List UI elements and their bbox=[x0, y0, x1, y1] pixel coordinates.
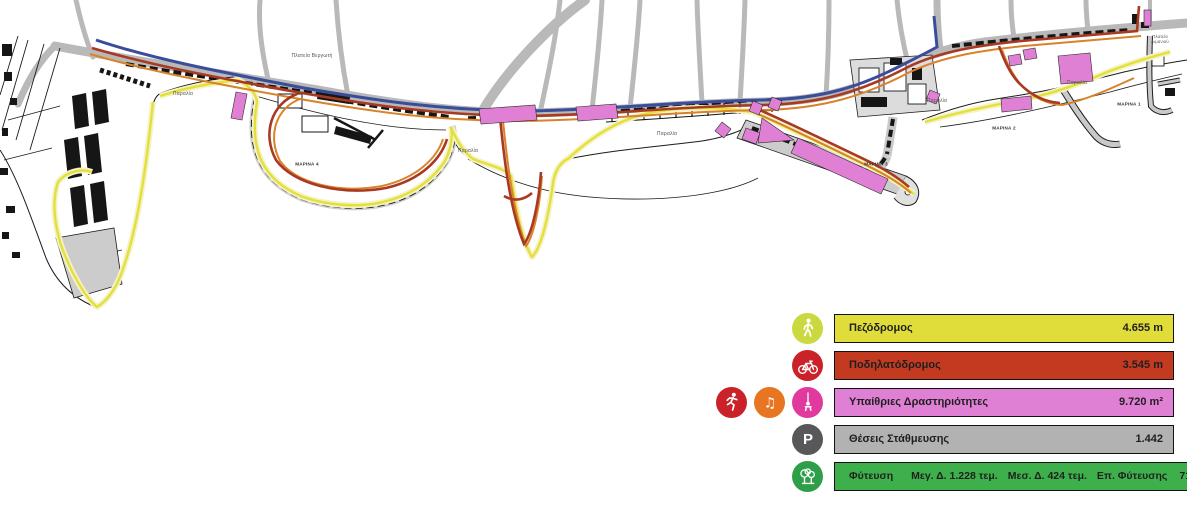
legend-icons-activities: ♫ bbox=[712, 387, 834, 418]
parking-icon: P bbox=[792, 424, 823, 455]
music-note-icon: ♫ bbox=[754, 387, 785, 418]
secondary-route bbox=[90, 36, 1141, 246]
legend-icons-bikeway bbox=[712, 350, 834, 381]
legend-row-bikeway: Ποδηλατόδρομος 3.545 m bbox=[712, 350, 1174, 380]
legend-bar-pedestrian: Πεζόδρομος 4.655 m bbox=[834, 314, 1174, 343]
legend-label: Θέσεις Στάθμευσης bbox=[849, 433, 949, 445]
svg-text:P: P bbox=[802, 431, 812, 448]
legend-bar-parking: Θέσεις Στάθμευσης 1.442 bbox=[834, 425, 1174, 454]
trees-icon bbox=[792, 461, 823, 492]
legend-bar-activities: Υπαίθριες Δραστηριότητες 9.720 m² bbox=[834, 388, 1174, 417]
legend-detail: Μεσ. Δ. 424 τεμ. bbox=[1008, 470, 1087, 482]
legend-value: 1.442 bbox=[1135, 433, 1163, 445]
legend-icons-planting bbox=[712, 461, 834, 492]
coastal-plan-page: Πλατεία ΒεργωτήΠαραλίαΜΑΡΙΝΑ 4ΠαραλίαΠαρ… bbox=[0, 0, 1187, 521]
legend-value: 9.720 m² bbox=[1119, 396, 1163, 408]
legend-label: Υπαίθριες Δραστηριότητες bbox=[849, 396, 988, 408]
coastal-plan-map bbox=[0, 0, 1187, 315]
legend-bar-bikeway: Ποδηλατόδρομος 3.545 m bbox=[834, 351, 1174, 380]
legend-label: Φύτευση bbox=[849, 470, 893, 482]
legend: Πεζόδρομος 4.655 m Ποδηλατόδρομος 3.545 … bbox=[712, 313, 1174, 498]
legend-row-planting: Φύτευση Μεγ. Δ. 1.228 τεμ. Μεσ. Δ. 424 τ… bbox=[712, 461, 1174, 491]
walking-person-icon bbox=[792, 313, 823, 344]
legend-detail: Επ. Φύτευσης bbox=[1097, 470, 1167, 482]
legend-label: Πεζόδρομος bbox=[849, 322, 913, 334]
legend-value: 4.655 m bbox=[1123, 322, 1163, 334]
legend-value: 71.200 m² bbox=[1179, 470, 1187, 482]
legend-detail: Μεγ. Δ. 1.228 τεμ. bbox=[911, 470, 998, 482]
svg-text:♫: ♫ bbox=[763, 396, 776, 412]
runner-icon bbox=[716, 387, 747, 418]
legend-value: 3.545 m bbox=[1123, 359, 1163, 371]
legend-row-parking: P Θέσεις Στάθμευσης 1.442 bbox=[712, 424, 1174, 454]
swing-icon bbox=[792, 387, 823, 418]
legend-icons-parking: P bbox=[712, 424, 834, 455]
legend-icons-pedestrian bbox=[712, 313, 834, 344]
legend-bar-planting: Φύτευση Μεγ. Δ. 1.228 τεμ. Μεσ. Δ. 424 τ… bbox=[834, 462, 1187, 491]
legend-label: Ποδηλατόδρομος bbox=[849, 359, 941, 371]
legend-row-pedestrian: Πεζόδρομος 4.655 m bbox=[712, 313, 1174, 343]
bicycle-icon bbox=[792, 350, 823, 381]
pedestrian-route bbox=[54, 52, 1170, 307]
legend-row-activities: ♫ Υπαίθριες Δραστηριότητες 9.720 m² bbox=[712, 387, 1174, 417]
